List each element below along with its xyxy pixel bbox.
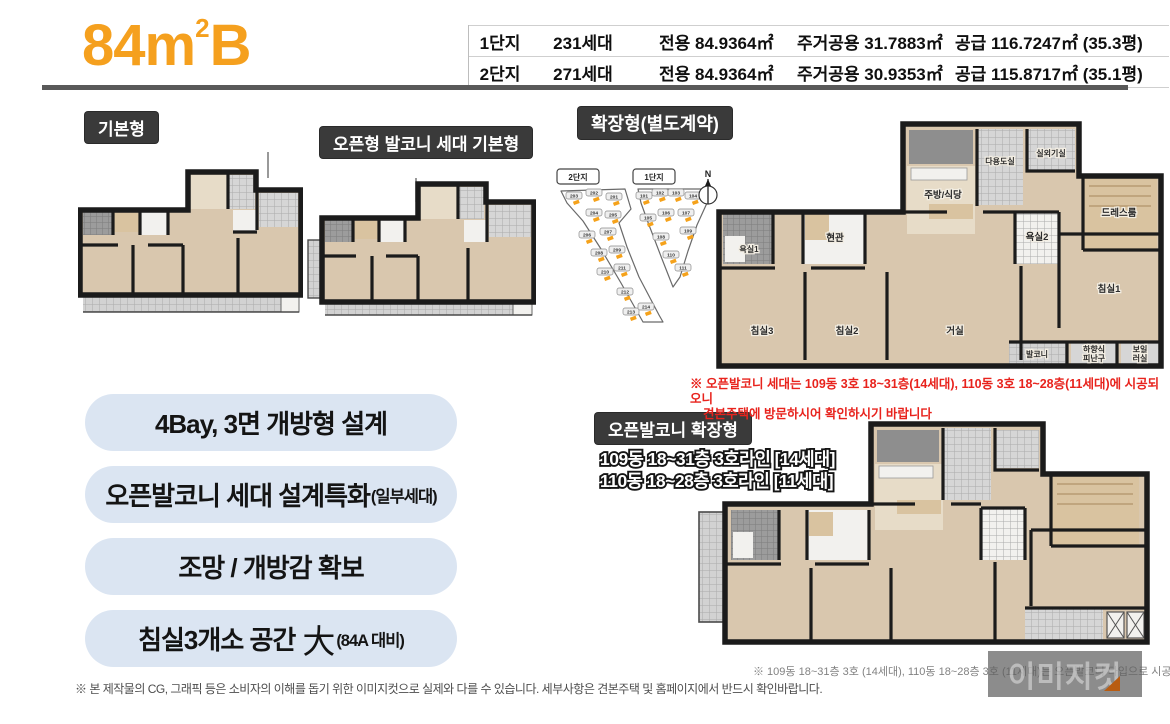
floor-plan-extended: 실외기실 다용도실 주방/식당 드레스룸 욕실2 현관 욕실1 침실1 침실3 … — [715, 116, 1167, 374]
tile-grid — [1025, 608, 1103, 642]
complex1-label: 1단지 — [644, 172, 663, 182]
cell-complex: 2단지 — [469, 60, 531, 85]
building-number: 111 — [679, 266, 687, 272]
tile-grid — [995, 430, 1039, 468]
room-label-living: 거실 — [946, 325, 964, 337]
tile-grid — [981, 508, 1025, 560]
floor-plan-open-balcony-extended — [695, 416, 1167, 656]
feature-text: 침실3개소 공간 — [138, 620, 295, 657]
bathroom-area — [464, 220, 486, 242]
page-curl-decoration — [1104, 676, 1120, 691]
building-number: 214 — [642, 305, 650, 311]
note-line-1: ※ 오픈발코니 세대는 109동 3호 18~31층(14세대), 110동 3… — [690, 377, 1170, 407]
terrace-area — [877, 430, 939, 462]
building-marker: 210 — [597, 268, 613, 281]
tile-grid — [458, 187, 484, 219]
building-number: 213 — [627, 310, 635, 316]
feature-big-char: 大 — [302, 615, 334, 663]
cell-units: 231세대 — [531, 29, 635, 54]
label-basic-type: 기본형 — [85, 112, 158, 143]
table-row: 1단지 231세대 전용 84.9364㎡ 주거공용 31.7883㎡ 공급 1… — [469, 25, 1169, 56]
tile-grid — [228, 175, 255, 209]
bathroom-area — [233, 210, 257, 232]
building-marker: 208 — [591, 249, 607, 262]
page-title-tail: B — [210, 13, 251, 78]
feature-pill-bedrooms: 침실3개소 공간大(84A 대비) — [85, 610, 457, 667]
room-label-bed2: 침실2 — [836, 325, 859, 337]
building-number: 210 — [601, 270, 609, 276]
table-row: 2단지 271세대 전용 84.9364㎡ 주거공용 30.9353㎡ 공급 1… — [469, 56, 1169, 88]
room-label-outdoor-unit: 실외기실 — [1036, 148, 1065, 158]
tile-grid — [977, 129, 1023, 205]
room-label-bed1: 침실1 — [1098, 283, 1121, 295]
cell-units: 271세대 — [531, 60, 635, 85]
building-number: 106 — [662, 211, 670, 217]
kitchen-counter — [879, 466, 933, 478]
room-label-dressroom: 드레스룸 — [1102, 207, 1137, 219]
feature-text: 4Bay, 3면 개방형 설계 — [155, 404, 387, 441]
building-marker: 206 — [579, 231, 595, 244]
building-number: 108 — [657, 235, 665, 241]
dressroom-area — [1051, 476, 1139, 546]
building-number: 101 — [640, 194, 648, 200]
balcony-grid — [699, 512, 725, 622]
header-divider — [42, 85, 1128, 90]
tile-grid — [83, 212, 113, 235]
cell-complex: 1단지 — [469, 29, 531, 54]
cell-common-area: 주거공용 30.9353㎡ — [797, 60, 955, 85]
terrace-area — [909, 130, 973, 164]
kitchen-island — [897, 500, 941, 514]
building-number: 107 — [682, 211, 690, 217]
label-open-balcony-basic-type: 오픈형 발코니 세대 기본형 — [320, 127, 532, 158]
complex2-label: 2단지 — [568, 172, 587, 182]
compass-n-label: N — [705, 169, 712, 179]
building-number: 206 — [583, 233, 591, 239]
building-number: 202 — [590, 191, 598, 197]
floor-plan-open-balcony-basic — [306, 176, 536, 318]
entrance-closet — [809, 512, 833, 536]
building-number: 204 — [590, 211, 598, 217]
room-label-bath1: 욕실1 — [739, 244, 759, 254]
floor-plan-slide: 84m2B 1단지 231세대 전용 84.9364㎡ 주거공용 31.7883… — [0, 0, 1170, 724]
cell-supply-area: 공급 115.8717㎡ (35.1평) — [955, 60, 1165, 85]
closet-area — [354, 220, 379, 239]
building-number: 105 — [644, 216, 652, 222]
feature-text: 조망 / 개방감 확보 — [178, 548, 363, 585]
closet-area — [114, 212, 140, 232]
building-marker: 213 — [623, 308, 639, 321]
building-number: 109 — [684, 229, 692, 235]
tile-grid — [259, 193, 298, 227]
building-number: 207 — [604, 230, 612, 236]
page-title: 84m2B — [82, 12, 250, 79]
tile-grid — [489, 205, 531, 237]
disclaimer-text: ※ 본 제작물의 CG, 그래픽 등은 소비자의 이해를 돕기 위한 이미지컷으… — [75, 680, 822, 697]
building-number: 102 — [656, 191, 664, 197]
floor-plan-basic — [78, 150, 303, 318]
building-number: 110 — [667, 253, 675, 259]
room-label-balcony: 발코니 — [1026, 349, 1048, 359]
entry-area — [380, 220, 405, 242]
cell-exclusive-area: 전용 84.9364㎡ — [659, 29, 797, 54]
building-number: 212 — [621, 290, 629, 296]
page-title-base: 84m — [82, 13, 195, 78]
room-label-escape-2: 피난구 — [1083, 353, 1106, 363]
feature-pill-4bay: 4Bay, 3면 개방형 설계 — [85, 394, 457, 451]
kitchen-area — [420, 187, 458, 219]
room-label-bath2: 욕실2 — [1026, 231, 1049, 243]
entry-area — [141, 212, 167, 235]
building-number: 209 — [613, 248, 621, 254]
tile-grid — [943, 428, 991, 500]
page-title-sup: 2 — [195, 13, 209, 43]
building-number: 201 — [610, 195, 618, 201]
cell-common-area: 주거공용 31.7883㎡ — [797, 29, 955, 54]
room-label-boiler-1: 보일 — [1133, 344, 1148, 354]
unit-summary-table: 1단지 231세대 전용 84.9364㎡ 주거공용 31.7883㎡ 공급 1… — [468, 25, 1169, 88]
building-number: 208 — [595, 251, 603, 257]
kitchen-counter — [911, 168, 967, 180]
building-number: 211 — [618, 266, 626, 272]
feature-suffix: (84A 대비) — [336, 627, 404, 651]
site-plan: 2단지 1단지 203 202 201 204 205 206 207 208 … — [545, 165, 720, 325]
cell-supply-area: 공급 116.7247㎡ (35.3평) — [955, 29, 1165, 54]
building-number: 203 — [570, 194, 578, 200]
kitchen-area — [190, 175, 230, 209]
tile-grid — [325, 220, 353, 242]
building-number: 205 — [609, 213, 617, 219]
room-label-entrance: 현관 — [826, 232, 844, 244]
building-number: 104 — [689, 194, 697, 200]
room-label-boiler-2: 러실 — [1133, 353, 1148, 363]
cell-exclusive-area: 전용 84.9364㎡ — [659, 60, 797, 85]
room-label-bed3: 침실3 — [751, 325, 774, 337]
room-label-escape-1: 하향식 — [1083, 344, 1105, 354]
feature-pill-open-balcony: 오픈발코니 세대 설계특화(일부세대) — [85, 466, 457, 523]
label-extended-type: 확장형(별도계약) — [578, 107, 732, 139]
building-number: 103 — [672, 191, 680, 197]
room-label-utility: 다용도실 — [985, 156, 1014, 166]
bathtub — [733, 532, 753, 558]
feature-text: 오픈발코니 세대 설계특화 — [105, 476, 370, 513]
room-label-kitchen: 주방/식당 — [924, 189, 962, 201]
feature-pill-view: 조망 / 개방감 확보 — [85, 538, 457, 595]
feature-suffix: (일부세대) — [371, 483, 437, 507]
